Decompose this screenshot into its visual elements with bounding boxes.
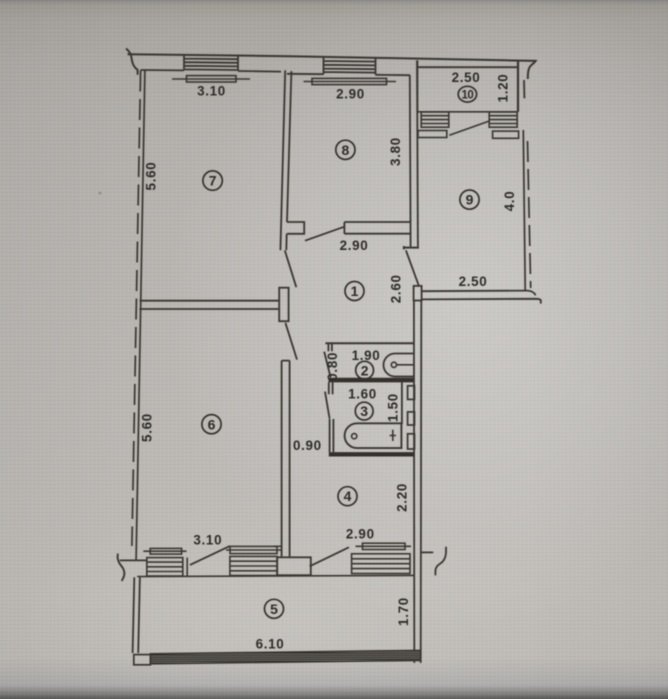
svg-text:5: 5 xyxy=(270,601,278,617)
svg-text:10: 10 xyxy=(462,90,474,102)
svg-text:3.10: 3.10 xyxy=(193,533,222,548)
svg-text:3.80: 3.80 xyxy=(388,137,403,166)
svg-text:3: 3 xyxy=(360,403,368,419)
svg-text:5.60: 5.60 xyxy=(144,162,159,191)
svg-text:7: 7 xyxy=(209,173,217,189)
svg-text:1.50: 1.50 xyxy=(386,393,401,422)
svg-text:1.70: 1.70 xyxy=(396,597,411,626)
svg-text:2.90: 2.90 xyxy=(340,238,369,253)
svg-text:4: 4 xyxy=(344,488,352,504)
svg-text:1.20: 1.20 xyxy=(496,74,511,103)
svg-text:2.90: 2.90 xyxy=(346,526,375,541)
svg-text:5.60: 5.60 xyxy=(140,413,155,442)
svg-text:2.50: 2.50 xyxy=(452,70,481,85)
svg-text:6: 6 xyxy=(208,416,216,432)
svg-text:6.10: 6.10 xyxy=(256,637,285,652)
svg-text:2: 2 xyxy=(361,362,369,378)
svg-text:2.90: 2.90 xyxy=(336,87,365,102)
svg-text:1.90: 1.90 xyxy=(352,348,381,363)
svg-text:0.80: 0.80 xyxy=(325,352,340,381)
svg-text:8: 8 xyxy=(342,142,350,158)
svg-text:2.20: 2.20 xyxy=(394,483,409,512)
svg-text:0.90: 0.90 xyxy=(293,438,322,453)
svg-text:1: 1 xyxy=(351,283,359,299)
svg-text:3.10: 3.10 xyxy=(197,84,226,99)
svg-text:2.60: 2.60 xyxy=(388,274,403,303)
svg-text:9: 9 xyxy=(466,192,474,208)
svg-text:2.50: 2.50 xyxy=(459,274,488,289)
svg-text:4.0: 4.0 xyxy=(502,191,517,212)
svg-text:1.60: 1.60 xyxy=(348,386,377,401)
